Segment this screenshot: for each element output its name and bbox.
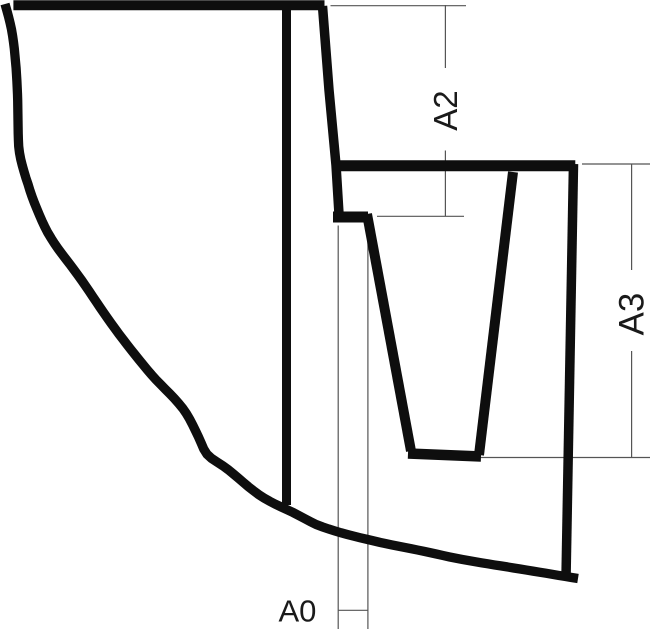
svg-text:A0: A0: [279, 594, 317, 629]
svg-text:A2: A2: [427, 90, 464, 130]
svg-text:A3: A3: [613, 293, 650, 336]
